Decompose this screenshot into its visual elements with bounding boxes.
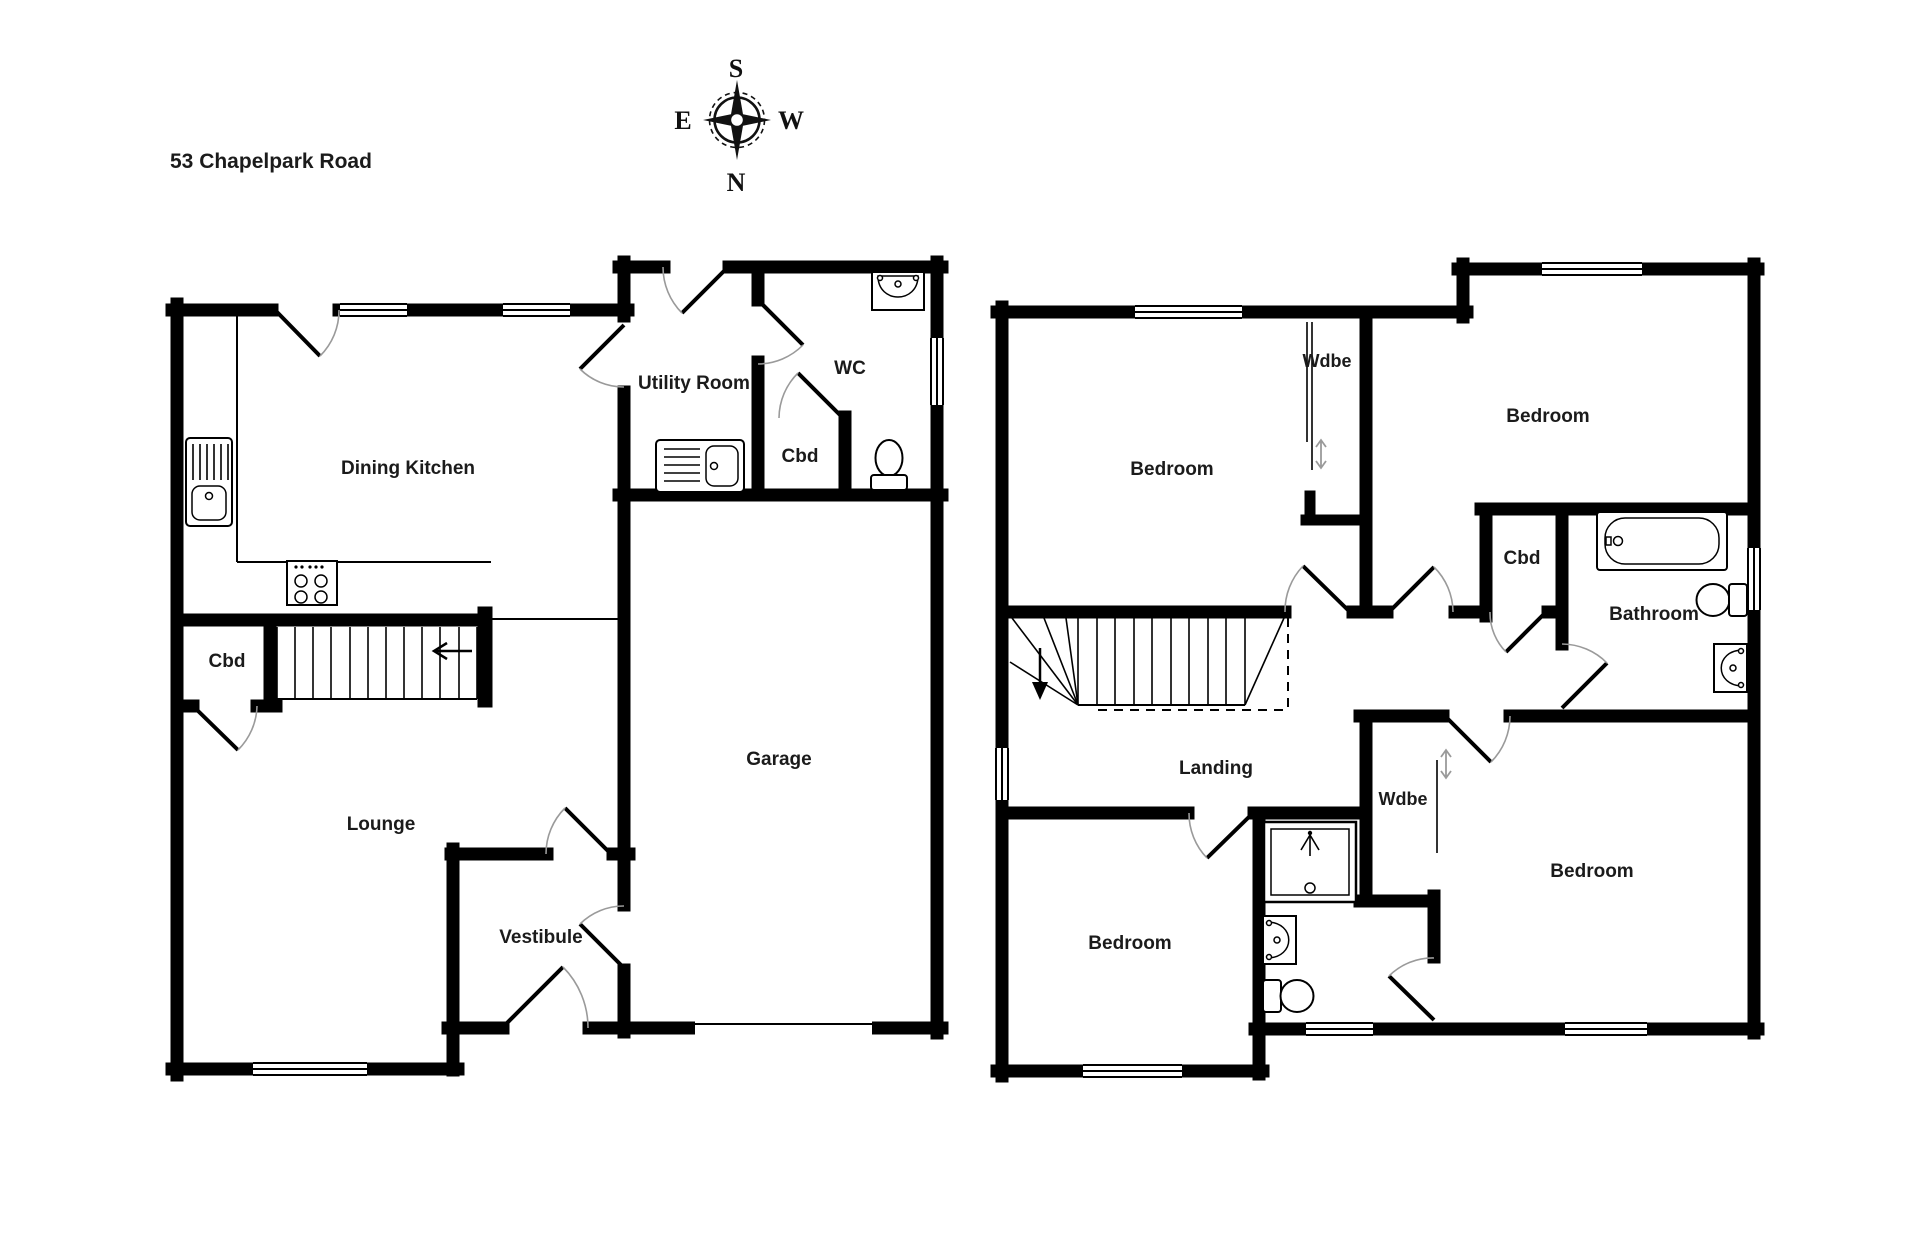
stairs-down-icon [1010,618,1288,710]
vestibule-label: Vestibule [499,927,582,948]
compass-west-label: W [778,106,804,135]
first-floor-walls [997,264,1758,1076]
stairs-up-icon [276,627,477,699]
bedroom-ne-label: Bedroom [1506,406,1589,427]
ensuite-toilet-icon [1263,980,1314,1012]
utility-sink-icon [656,440,744,492]
cooker-icon [287,561,337,605]
bathroom-toilet-icon [1697,584,1748,616]
wardrobe-n-rail-icon [1307,322,1326,470]
page-title: 53 Chapelpark Road [170,150,372,173]
bathroom-basin-icon [1714,644,1747,692]
floorplan-drawing: 53 Chapelpark Road S N E W [0,0,1920,1237]
first-floor-labels: Bedroom Wdbe Bedroom Cbd Bathroom Landin… [1088,351,1699,954]
bath-icon [1597,512,1727,570]
first-floor-plan: Bedroom Wdbe Bedroom Cbd Bathroom Landin… [995,262,1761,1078]
ground-floor-plan: Dining Kitchen Utility Room WC Cbd Cbd L… [172,262,944,1076]
wc-cupboard-label: Cbd [782,446,819,467]
wc-label: WC [834,358,866,379]
wardrobe-s-rail-icon [1437,750,1451,853]
stairs-direction-arrow [1032,648,1048,700]
wc-toilet-icon [871,440,907,490]
bedroom-sw-label: Bedroom [1088,933,1171,954]
utility-room-label: Utility Room [638,373,750,394]
kitchen-sink-icon [186,438,232,526]
bathroom-label: Bathroom [1609,604,1699,625]
dining-kitchen-label: Dining Kitchen [341,458,475,479]
garage-label: Garage [746,749,811,770]
ground-floor-walls [172,262,942,1075]
bedroom-nw-label: Bedroom [1130,459,1213,480]
wardrobe-n-label: Wdbe [1303,351,1352,371]
floorplan-page: 53 Chapelpark Road S N E W [0,0,1920,1237]
wardrobe-s-label: Wdbe [1379,789,1428,809]
wc-basin-icon [872,272,924,310]
stairs-cupboard-label: Cbd [209,651,246,672]
shower-icon [1264,822,1356,902]
first-floor-windows [995,262,1761,1078]
compass-east-label: E [674,106,691,135]
bedroom-se-label: Bedroom [1550,861,1633,882]
compass-south-label: S [729,54,743,83]
compass-north-label: N [727,168,746,197]
compass-rose-icon: S N E W [674,54,804,197]
lounge-label: Lounge [347,814,416,835]
cupboard-label: Cbd [1504,548,1541,569]
landing-label: Landing [1179,758,1253,779]
ensuite-basin-icon [1263,916,1296,964]
